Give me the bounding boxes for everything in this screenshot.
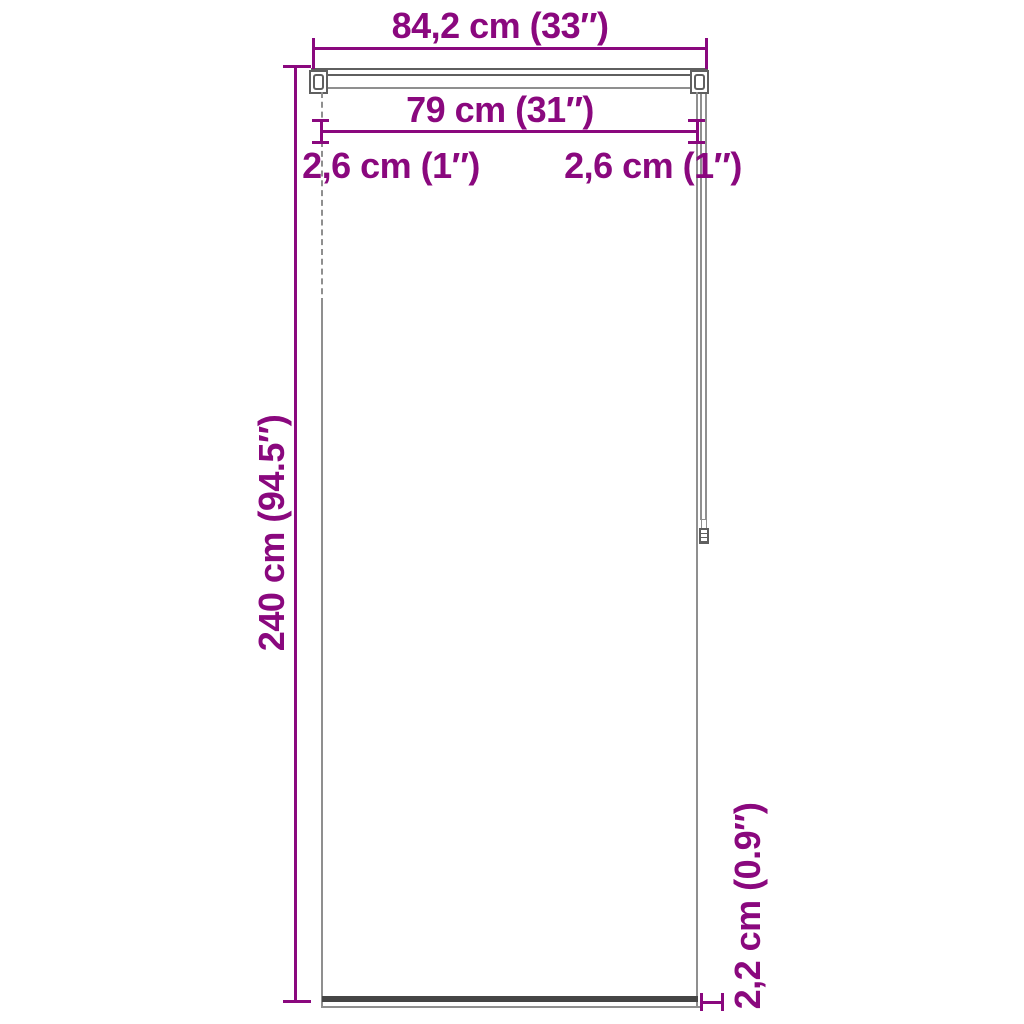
dim-height-cap-top (283, 65, 311, 68)
fabric-left-edge (321, 304, 323, 1008)
dim-inner-width-line (321, 130, 698, 133)
dim-height-label: 240 cm (94.5″) (252, 415, 292, 651)
dim-height-line (294, 66, 297, 1003)
dim-total-width-tick-left (312, 38, 315, 69)
diagram-canvas: 84,2 cm (33″) 79 cm (31″) 2,6 cm (1″) 2,… (0, 0, 1024, 1024)
dim-inner-width-tick-left-cap-top (312, 119, 329, 122)
dim-bottom-bar-label: 2,2 cm (0.9″) (728, 803, 768, 1010)
dim-height-cap-bottom (283, 1000, 311, 1003)
cord-tassel (699, 528, 709, 544)
dim-inner-width-label: 79 cm (31″) (330, 90, 670, 130)
fabric-bottom-edge (321, 1006, 702, 1008)
dim-left-inset-label: 2,6 cm (1″) (296, 146, 486, 186)
dim-bottom-bar-cap-left (700, 993, 703, 1011)
bottom-weight-bar (322, 996, 698, 1002)
top-rail (311, 68, 708, 76)
dim-bottom-bar-cap-right (721, 993, 724, 1011)
dim-inner-width-tick-left-cap-bottom (312, 141, 329, 144)
dim-total-width-line (313, 47, 707, 50)
dim-inner-width-tick-right-cap-bottom (688, 141, 705, 144)
fabric-right-edge (696, 92, 698, 1008)
mounting-bracket-right-inner (694, 74, 705, 90)
dim-total-width-label: 84,2 cm (33″) (280, 6, 720, 46)
dim-right-inset-label: 2,6 cm (1″) (558, 146, 748, 186)
mounting-bracket-left-inner (313, 74, 324, 90)
dim-total-width-tick-right (705, 38, 708, 69)
dim-inner-width-tick-right-cap-top (688, 119, 705, 122)
